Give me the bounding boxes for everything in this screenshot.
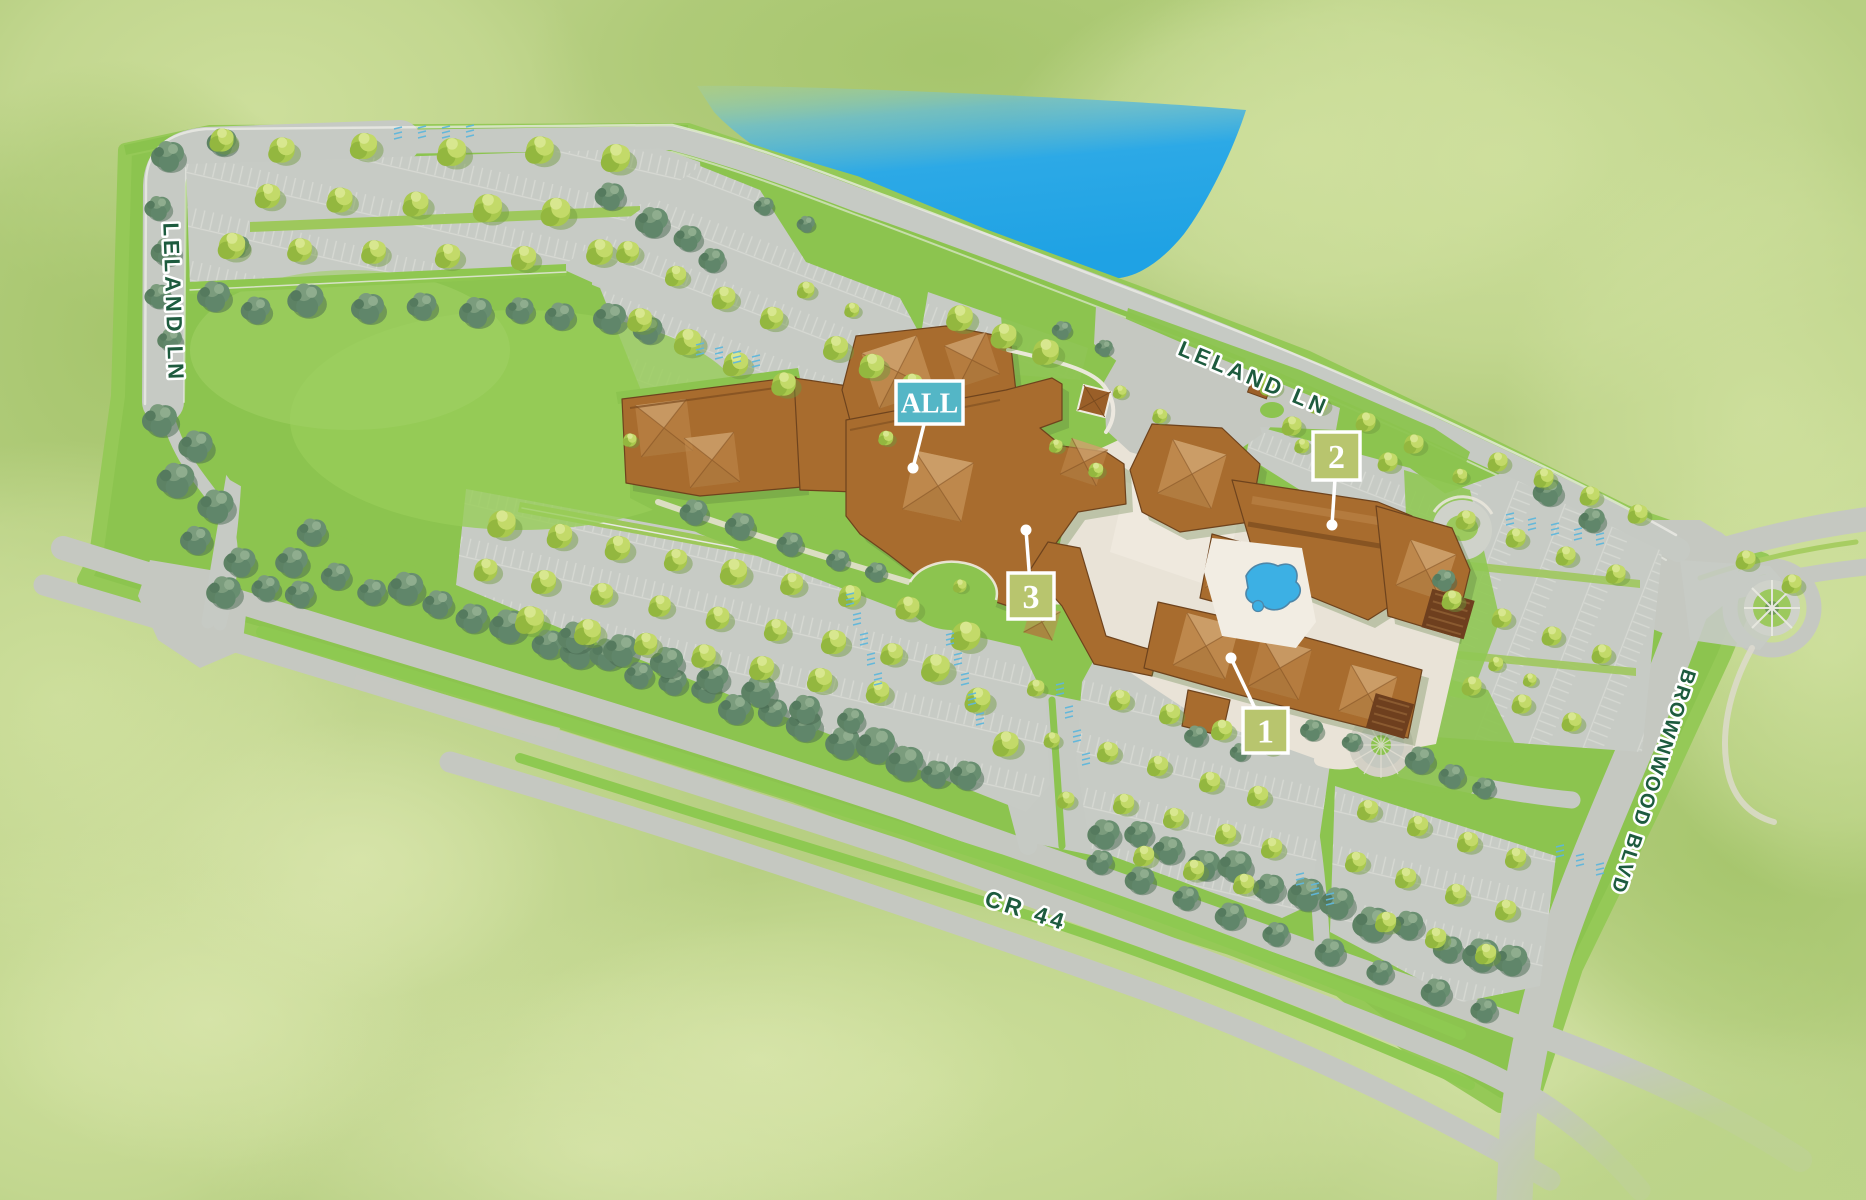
svg-text:2: 2 (1328, 439, 1345, 476)
svg-text:1: 1 (1257, 714, 1274, 751)
svg-text:3: 3 (1023, 579, 1040, 616)
svg-text:ALL: ALL (901, 389, 959, 420)
